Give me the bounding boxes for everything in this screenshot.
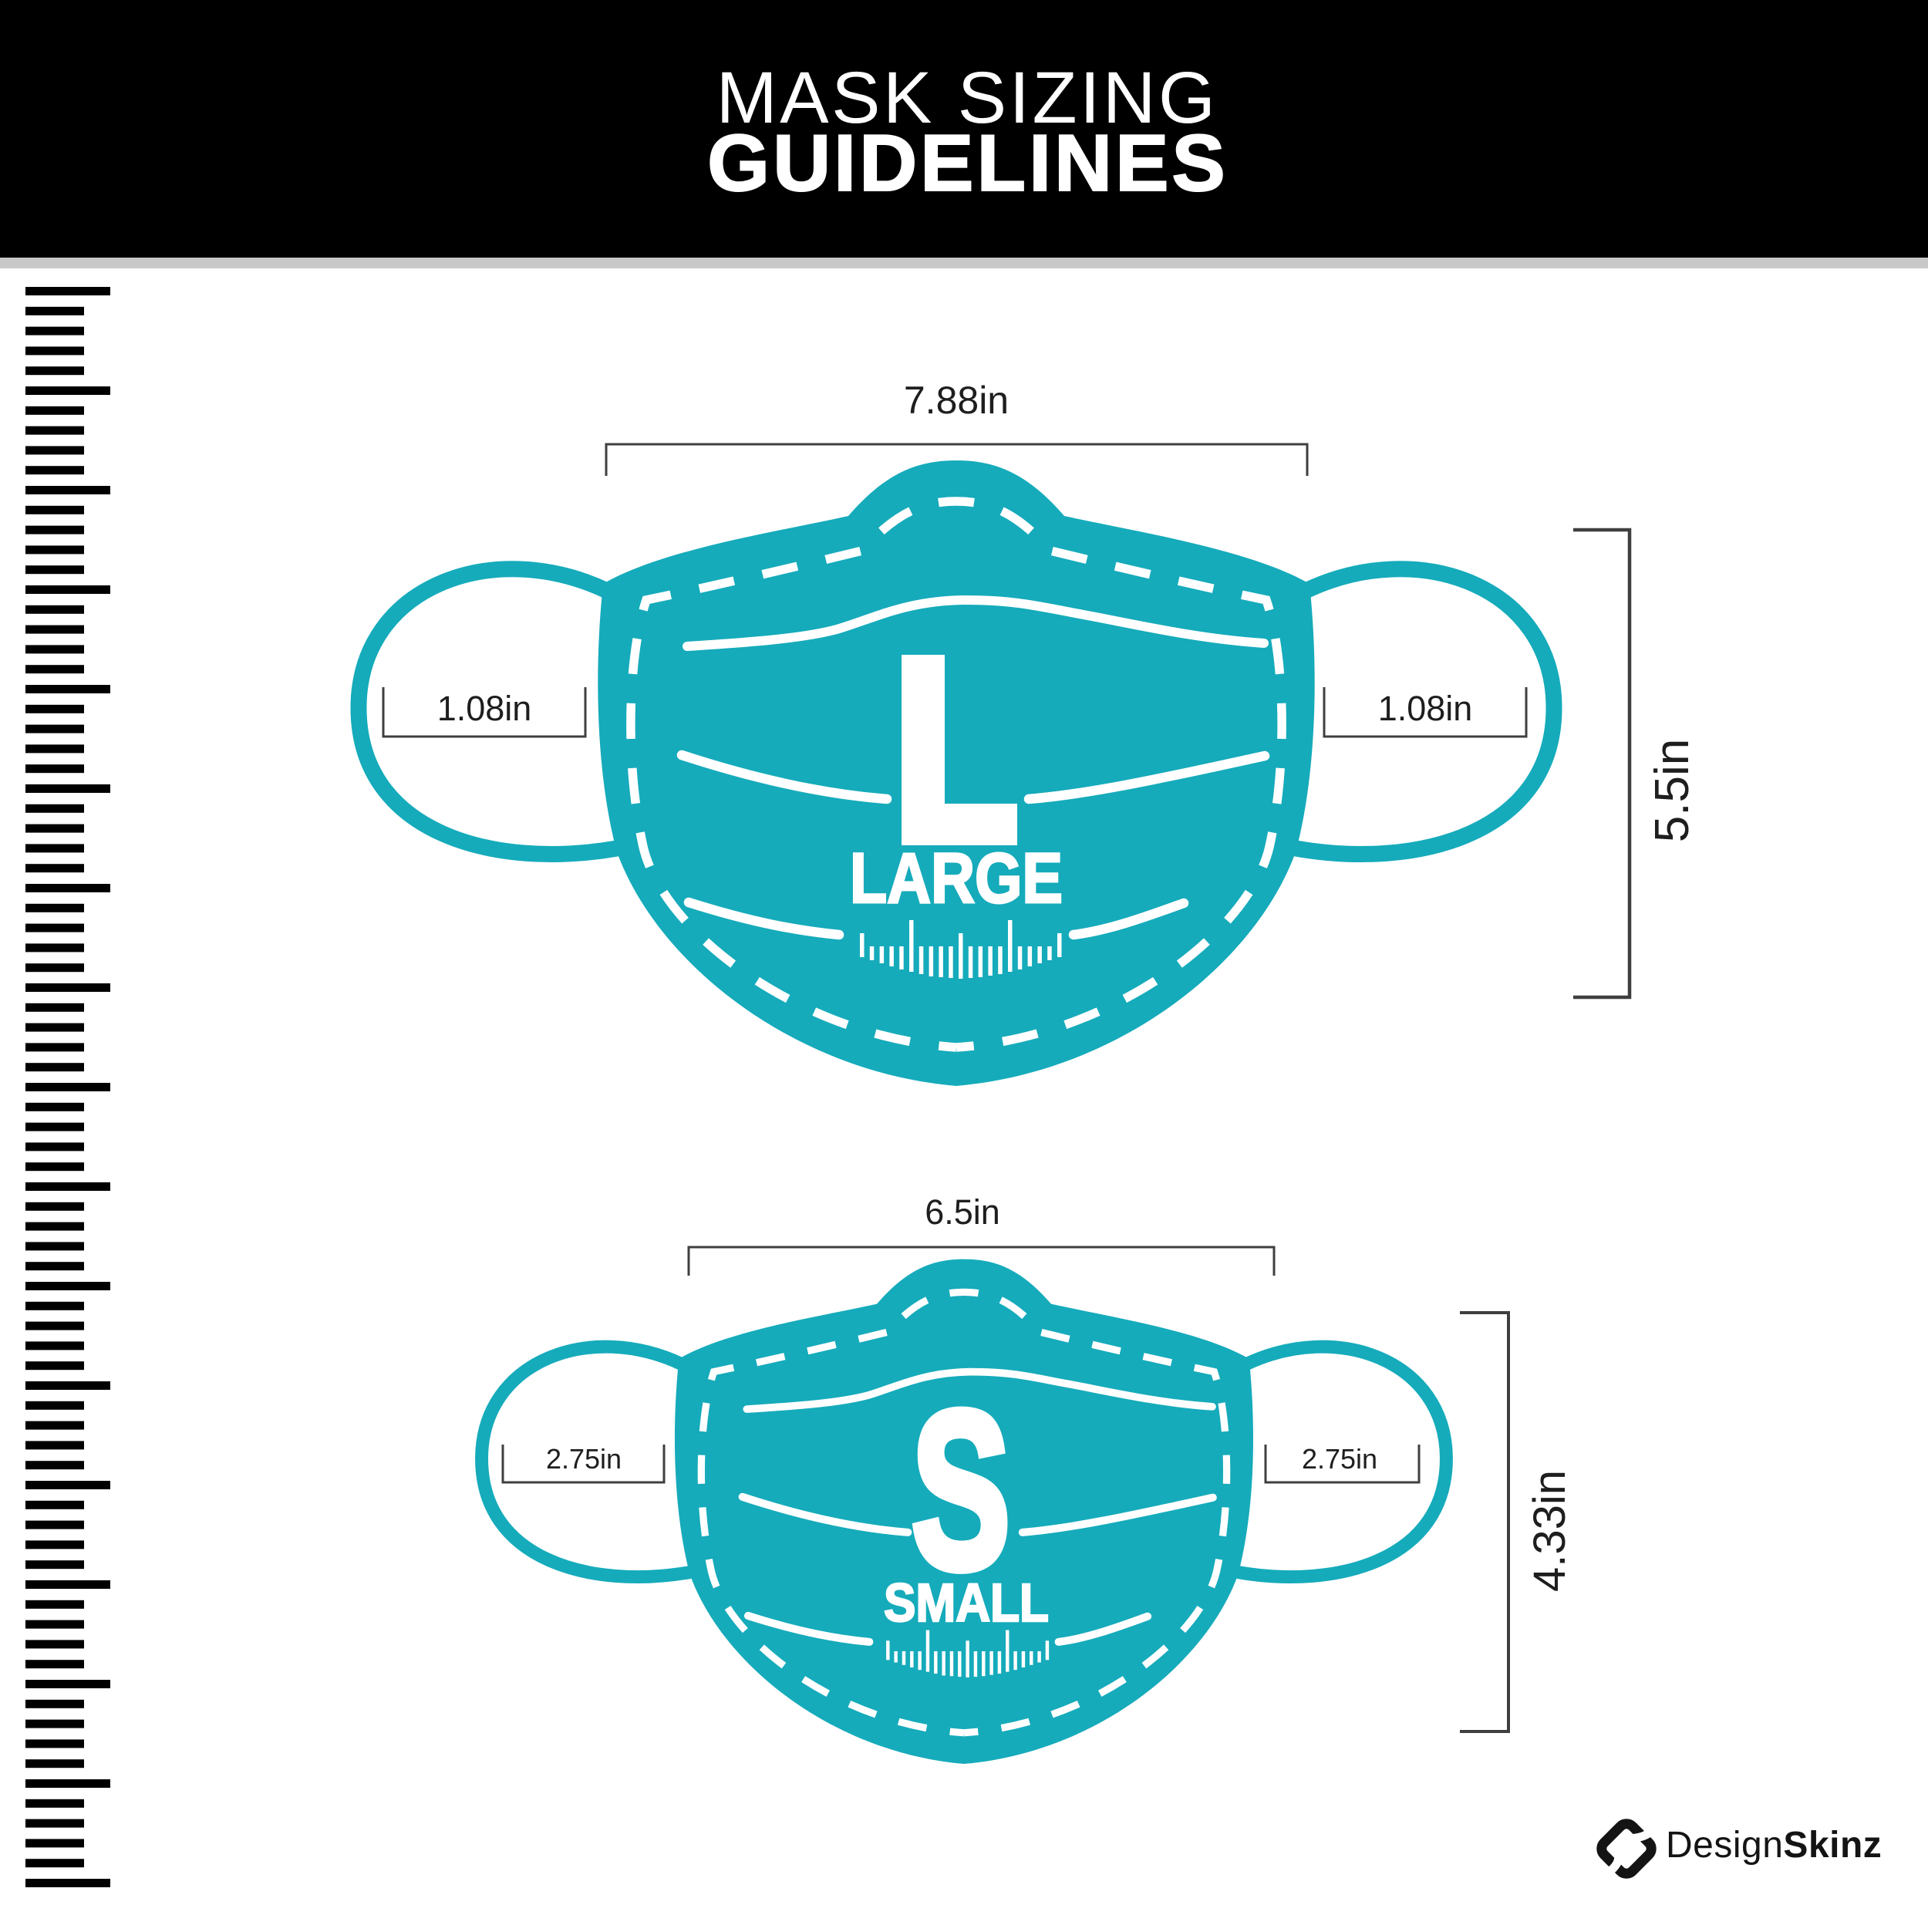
- svg-text:2.75in: 2.75in: [546, 1443, 622, 1475]
- svg-text:GUIDELINES: GUIDELINES: [707, 119, 1229, 208]
- svg-text:5.5in: 5.5in: [1646, 739, 1699, 842]
- svg-text:SMALL: SMALL: [884, 1573, 1049, 1633]
- svg-text:DesignSkinz: DesignSkinz: [1666, 1825, 1882, 1866]
- svg-text:1.08in: 1.08in: [437, 689, 532, 728]
- svg-text:1.08in: 1.08in: [1378, 689, 1473, 728]
- svg-text:7.88in: 7.88in: [904, 379, 1009, 422]
- svg-text:4.33in: 4.33in: [1525, 1470, 1575, 1592]
- svg-text:LARGE: LARGE: [850, 839, 1063, 918]
- svg-text:2.75in: 2.75in: [1302, 1443, 1377, 1475]
- svg-text:6.5in: 6.5in: [925, 1192, 1000, 1232]
